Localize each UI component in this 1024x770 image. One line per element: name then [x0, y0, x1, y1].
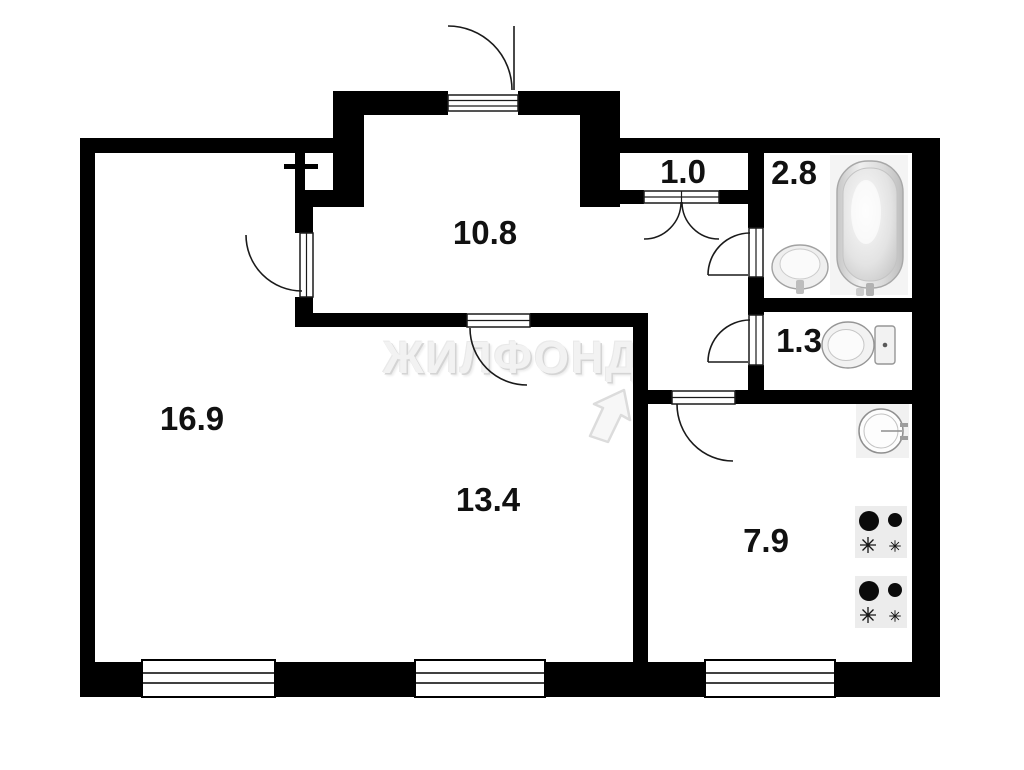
floor-plan: ЖИЛФОНД	[0, 0, 1024, 770]
room-labels: 16.9 10.8 1.0 2.8 1.3 13.4 7.9	[0, 0, 1024, 770]
room-label-kitchen: 7.9	[743, 522, 789, 560]
room-label-bedroom: 13.4	[456, 481, 520, 519]
room-label-hallway: 10.8	[453, 214, 517, 252]
room-label-living-room: 16.9	[160, 400, 224, 438]
room-label-wc: 1.3	[776, 322, 822, 360]
room-label-closet: 1.0	[660, 153, 706, 191]
room-label-bathroom: 2.8	[771, 154, 817, 192]
